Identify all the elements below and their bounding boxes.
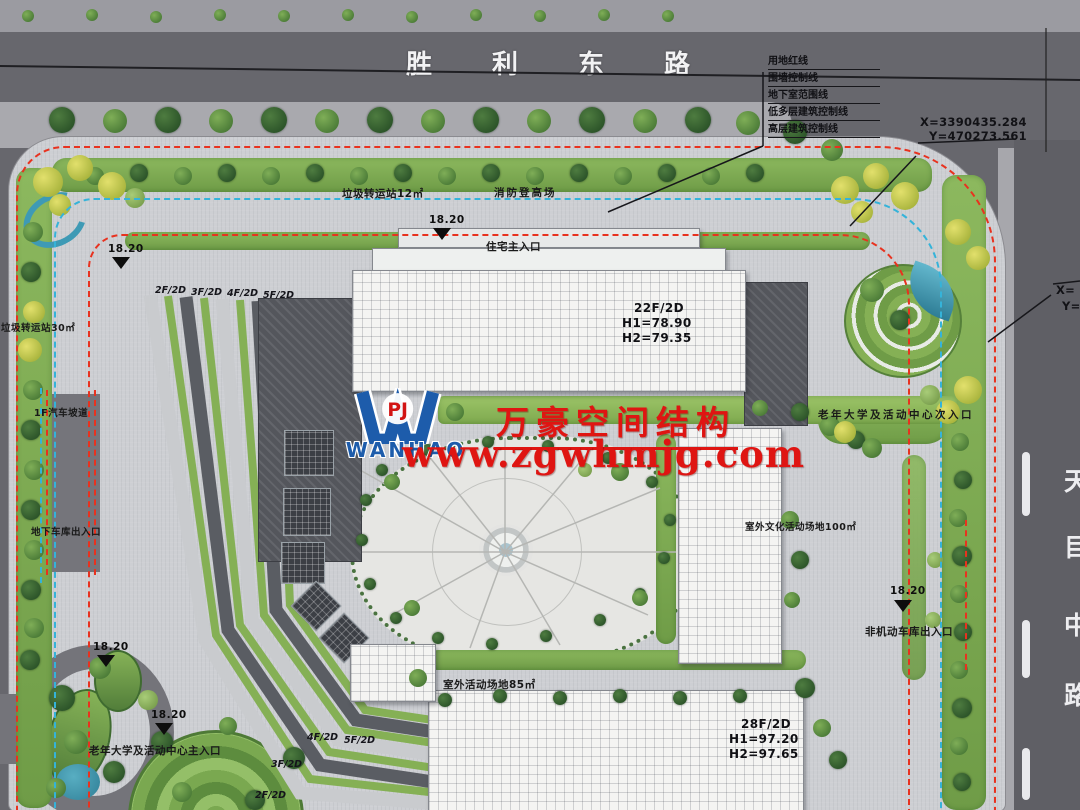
south-tower-h2: H2=97.65 [729, 747, 799, 762]
elevation-value: 18.20 [429, 214, 465, 226]
elevation-value: 18.20 [93, 641, 129, 653]
south-tower-h1: H1=97.20 [729, 732, 799, 747]
elevation-value: 18.20 [151, 709, 187, 721]
legend-wall-line: 围墙控制线 [768, 69, 880, 87]
podium-tag: 5F/2D [344, 735, 375, 746]
label-senior-main-entrance: 老年大学及活动中心主入口 [89, 743, 221, 758]
elevation-marker-icon [433, 228, 451, 240]
north-tower-h2: H2=79.35 [622, 331, 692, 346]
label-non-motor-entrance: 非机动车库出入口 [865, 624, 953, 639]
podium-tag: 3F/2D [271, 759, 302, 770]
green-belt-east [942, 175, 986, 810]
skylight [283, 488, 331, 536]
label-garbage-station-12: 垃圾转运站12㎡ [342, 186, 424, 201]
skylight [281, 542, 325, 584]
elevation-marker-icon [894, 600, 912, 612]
north-sidewalk [0, 0, 1080, 32]
podium-tag: 3F/2D [191, 287, 222, 298]
ramp-edge-line [94, 390, 96, 575]
label-garage-entrance: 地下车库出入口 [31, 524, 101, 538]
podium-tag: 2F/2D [255, 790, 286, 801]
elevation-value: 18.20 [890, 585, 926, 597]
label-car-ramp: 1F汽车坡道 [34, 405, 88, 419]
green-strip-east-inner [902, 455, 926, 680]
legend-highrise-line: 高层建筑控制线 [768, 120, 880, 138]
elevation-marker-icon [97, 655, 115, 667]
fountain [479, 524, 533, 576]
label-garbage-station-30: 垃圾转运站30㎡ [1, 320, 75, 334]
lane-marking [1022, 620, 1030, 678]
legend-lowrise-line: 低多层建筑控制线 [768, 103, 880, 121]
logo-monogram: PJ [387, 400, 408, 421]
watermark-website: www.zgwhmjg.com [402, 432, 805, 476]
label-residential-entrance: 住宅主入口 [486, 239, 541, 254]
north-tower-floors: 22F/2D [634, 301, 692, 316]
label-senior-side-entrance: 老年大学及活动中心次入口 [818, 407, 974, 422]
label-activity-ground: 室外活动场地85㎡ [443, 677, 536, 692]
edge-coordinate-y: Y= [1062, 299, 1080, 313]
elevation-marker-icon [112, 257, 130, 269]
green-belt-north [52, 158, 932, 192]
lane-marking [1022, 452, 1030, 516]
elevation-value: 18.20 [108, 243, 144, 255]
legend-basement-line: 地下室范围线 [768, 86, 880, 104]
south-tower-label: 28F/2D H1=97.20 H2=97.65 [729, 717, 799, 762]
coordinate-y: Y=470273.561 [929, 129, 1027, 143]
south-tower-floors: 28F/2D [741, 717, 799, 732]
label-culture-ground: 室外文化活动场地100㎡ [745, 519, 856, 533]
podium-tag: 5F/2D [263, 290, 294, 301]
car-ramp-road [44, 394, 100, 572]
skylight [284, 430, 334, 476]
east-road-char: 目 [1064, 528, 1080, 564]
edge-coordinate-x: X= [1056, 283, 1075, 297]
north-road-name: 胜利东路 [406, 44, 750, 81]
podium-tag: 2F/2D [155, 285, 186, 296]
east-road-char: 路 [1064, 676, 1080, 712]
building-pavilion [350, 644, 436, 702]
podium-tag: 4F/2D [307, 732, 338, 743]
label-fire-lane: 消防登高场 [494, 185, 557, 200]
podium-roof-ne [744, 282, 808, 426]
coordinate-x: X=3390435.284 [920, 115, 1027, 129]
east-road-char: 天 [1064, 462, 1080, 498]
legend-red-line: 用地红线 [768, 52, 880, 70]
lane-marking [1022, 748, 1030, 800]
east-road-char: 中 [1064, 606, 1080, 642]
site-plan-canvas: 胜利东路 天 目 中 路 [0, 0, 1080, 810]
pond-sw [56, 764, 100, 800]
elevation-marker-icon [155, 723, 173, 735]
north-tower-h1: H1=78.90 [622, 316, 692, 331]
control-line-segment [965, 520, 967, 670]
north-tower-label: 22F/2D H1=78.90 H2=79.35 [622, 301, 692, 346]
podium-tag: 4F/2D [227, 288, 258, 299]
